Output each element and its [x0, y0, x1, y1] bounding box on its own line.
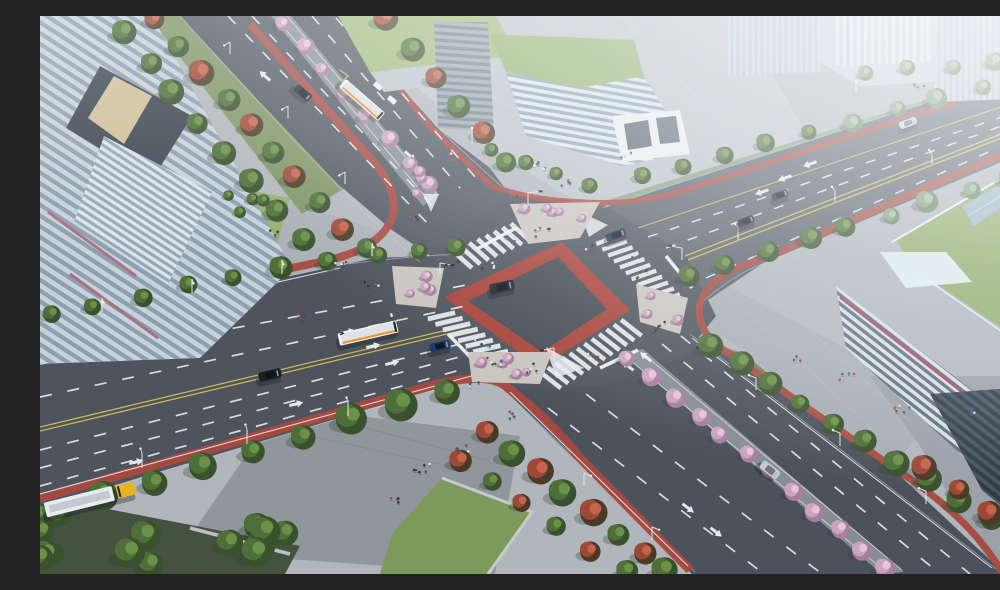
- haze-overlay: [40, 16, 1000, 574]
- rendering-canvas: [40, 16, 1000, 574]
- intersection-aerial-rendering: Aerial architectural rendering of a sign…: [40, 16, 1000, 574]
